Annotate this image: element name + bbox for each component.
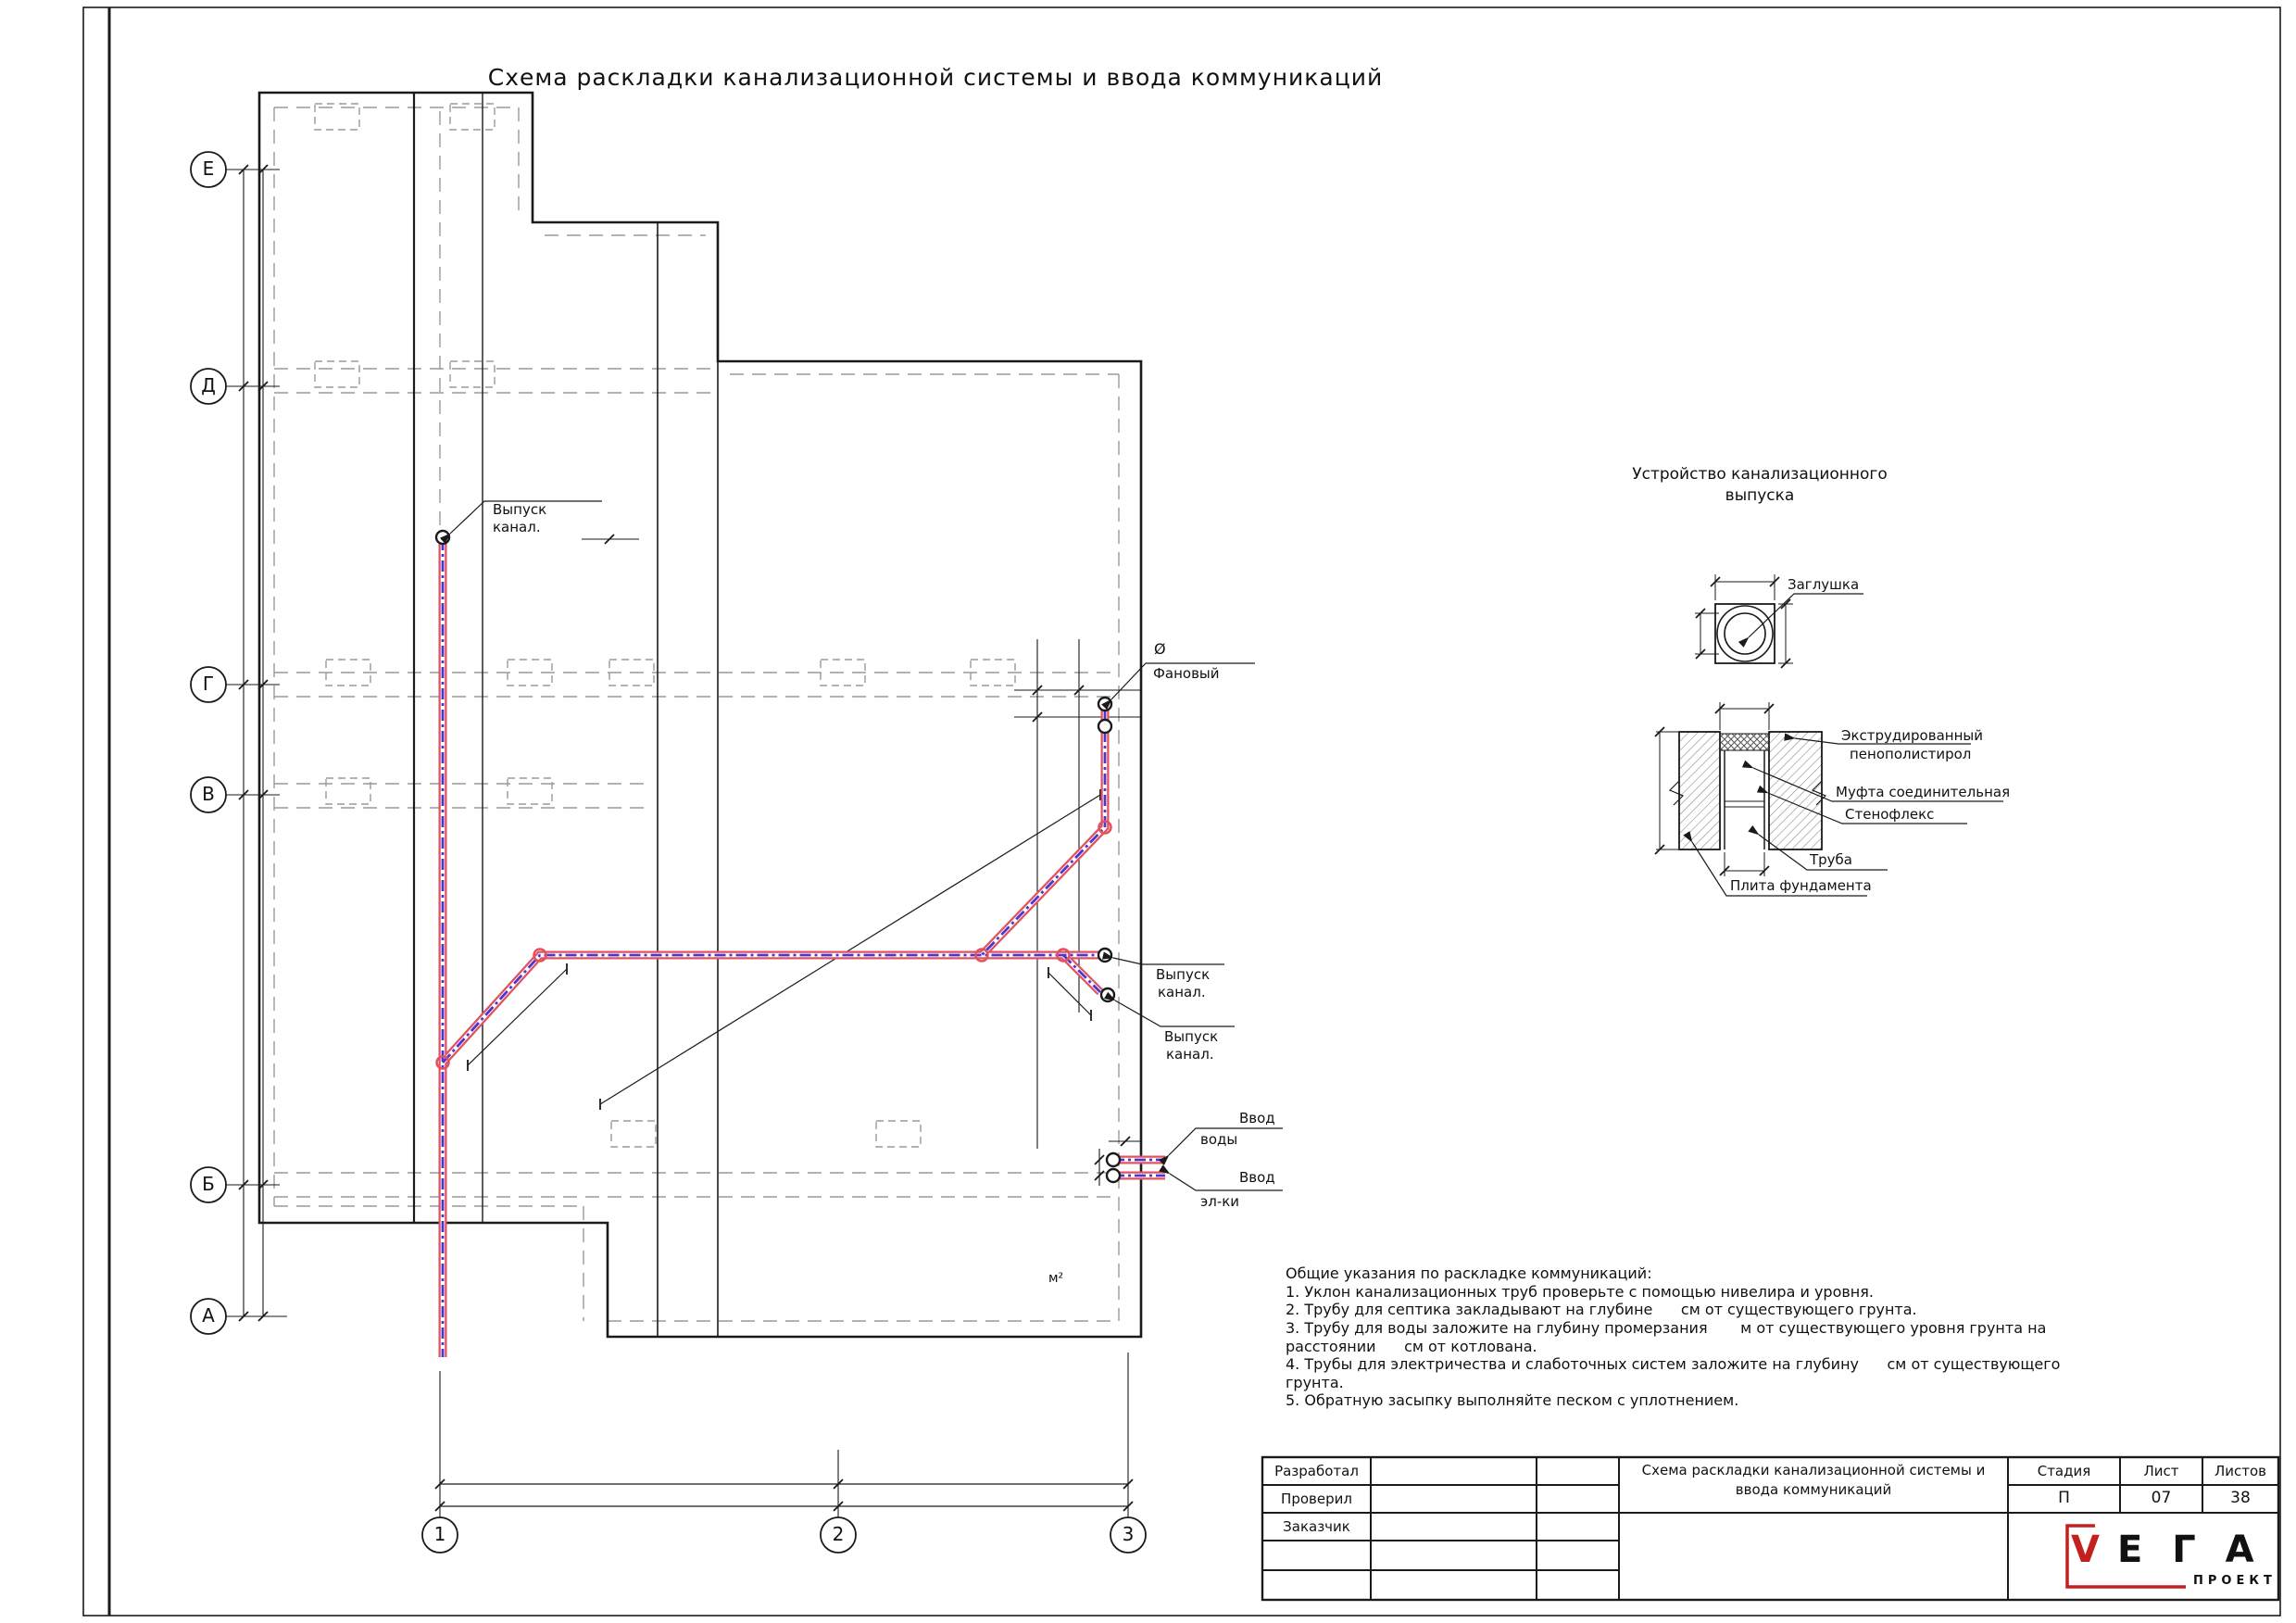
notes-line-3: 3. Трубу для воды заложите на глубину пр…	[1286, 1320, 2046, 1337]
inner-dashed-walls	[274, 107, 1119, 1321]
logo-letter-v: V	[2071, 1529, 2108, 1571]
electric-inlet-label-line1: Ввод	[1239, 1170, 1275, 1186]
notes-line-1: 1. Уклон канализационных труб проверьте …	[1286, 1284, 1874, 1301]
doc-title-line1: Схема раскладки канализационной системы …	[1619, 1463, 2008, 1478]
pipe-network	[437, 539, 1166, 1357]
sheet-header: Лист	[2120, 1464, 2202, 1479]
stenoflex-label: Стенофлекс	[1845, 807, 1934, 823]
notes-line-2: 2. Трубу для септика закладывают на глуб…	[1286, 1302, 1917, 1318]
notes-line-3b: расстоянии см от котлована.	[1286, 1339, 1537, 1355]
outlet-top-label-line2: канал.	[493, 520, 541, 535]
pipe-end-circles	[436, 531, 1120, 1182]
axis-letter-b: Б	[191, 1174, 226, 1195]
plug-label: Заглушка	[1788, 577, 1859, 593]
stage-value: П	[2008, 1490, 2120, 1508]
vent-label: Фановый	[1153, 666, 1220, 682]
checked-label: Проверил	[1262, 1491, 1371, 1507]
xps-label-line1: Экструдированный	[1841, 728, 1983, 744]
page-frame	[83, 7, 2280, 1616]
logo-letters-rest: Е Г А	[2117, 1529, 2263, 1571]
axis-letter-d: Д	[191, 375, 226, 396]
drawing-canvas	[0, 0, 2296, 1623]
axis-letter-v: В	[191, 784, 226, 805]
pipe-fittings	[437, 822, 1111, 1069]
axis-number-1: 1	[422, 1524, 458, 1545]
axis-number-2: 2	[821, 1524, 856, 1545]
column-pads	[315, 104, 1015, 1147]
axis-number-3: 3	[1110, 1524, 1146, 1545]
outlet-right1-label-line1: Выпуск	[1156, 967, 1210, 983]
doc-title-line2: ввода коммуникаций	[1619, 1482, 2008, 1498]
logo-letters: VЕ Г А	[2071, 1529, 2263, 1571]
drawing-sheet: Схема раскладки канализационной системы …	[0, 0, 2296, 1623]
xps-label-line2: пенополистирол	[1850, 747, 1971, 762]
sheets-value: 38	[2202, 1490, 2278, 1508]
detail-title-line1: Устройство канализационного	[1528, 466, 1991, 484]
sheets-header: Листов	[2202, 1464, 2278, 1479]
outlet-right2-label-line2: канал.	[1166, 1047, 1214, 1063]
area-unit-label: м²	[1048, 1271, 1063, 1286]
notes-line-4: 4. Трубы для электричества и слаботочных…	[1286, 1356, 2060, 1373]
dimension-ticks	[239, 165, 1133, 1511]
notes-heading: Общие указания по раскладке коммуникаций…	[1286, 1265, 1652, 1282]
axis-letter-g: Г	[191, 673, 226, 695]
water-inlet-label-line1: Ввод	[1239, 1111, 1275, 1126]
outlet-right2-label-line1: Выпуск	[1164, 1029, 1218, 1045]
outlet-top-label-line1: Выпуск	[493, 502, 546, 518]
axis-letter-a: А	[191, 1305, 226, 1327]
axis-letter-e: Е	[191, 158, 226, 180]
vent-diameter-symbol: Ø	[1154, 641, 1166, 658]
notes-line-4b: грунта.	[1286, 1375, 1344, 1391]
logo-subtitle: ПРОЕКТ	[2193, 1575, 2277, 1589]
pipe-label: Труба	[1810, 852, 1852, 868]
water-inlet-label-line2: воды	[1200, 1132, 1237, 1148]
building-outline	[259, 93, 1141, 1337]
customer-label: Заказчик	[1262, 1519, 1371, 1535]
coupling-label: Муфта соединительная	[1836, 785, 2010, 800]
leader-lines	[450, 501, 1283, 1190]
outlet-right1-label-line2: канал.	[1158, 985, 1206, 1000]
stage-header: Стадия	[2008, 1464, 2120, 1479]
notes-line-5: 5. Обратную засыпку выполняйте песком с …	[1286, 1392, 1738, 1409]
dimension-lines	[239, 165, 1142, 1511]
detail-title-line2: выпуска	[1528, 487, 1991, 506]
sheet-value: 07	[2120, 1490, 2202, 1508]
electric-inlet-label-line2: эл-ки	[1200, 1194, 1239, 1210]
slab-label: Плита фундамента	[1730, 878, 1872, 894]
developed-label: Разработал	[1262, 1464, 1371, 1479]
page-title: Схема раскладки канализационной системы …	[472, 65, 1399, 92]
